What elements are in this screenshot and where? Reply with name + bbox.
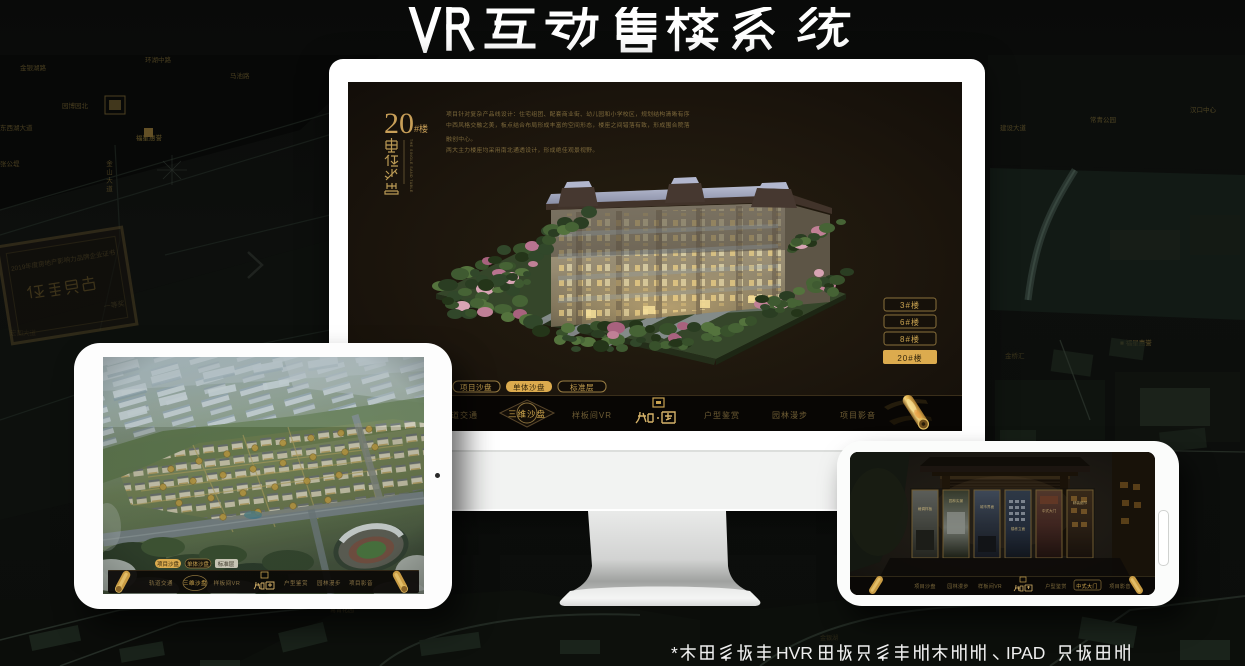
svg-text:THE SINGLE SAND TABLE: THE SINGLE SAND TABLE [409, 139, 413, 193]
svg-text:项目针对复杂产品线设计：住宅组团、配套商业街、幼儿园和小学校: 项目针对复杂产品线设计：住宅组团、配套商业街、幼儿园和小学校区，规划结构清晰有序 [446, 110, 690, 118]
svg-text:金桥汇: 金桥汇 [1005, 351, 1025, 360]
svg-text:常青公园: 常青公园 [1090, 115, 1116, 124]
svg-text:样板间VR: 样板间VR [572, 410, 612, 420]
svg-text:融创中心。: 融创中心。 [446, 135, 477, 143]
svg-text:马池路: 马池路 [230, 71, 250, 80]
svg-text:园林漫步: 园林漫步 [317, 579, 341, 587]
svg-text:格调样板: 格调样板 [918, 506, 933, 511]
svg-text:轨道交通: 轨道交通 [149, 579, 173, 587]
svg-text:户型鉴赏: 户型鉴赏 [284, 579, 308, 587]
svg-text:单体沙盘: 单体沙盘 [187, 560, 210, 568]
svg-text:样板间VR: 样板间VR [978, 583, 1002, 590]
svg-text:#楼: #楼 [414, 123, 428, 134]
svg-text:项目沙盘: 项目沙盘 [914, 583, 936, 590]
svg-text:园林漫步: 园林漫步 [772, 410, 808, 420]
svg-text:园博园北: 园博园北 [62, 101, 89, 110]
svg-text:三维沙盘: 三维沙盘 [508, 409, 546, 419]
svg-text:城市界面: 城市界面 [980, 504, 995, 509]
svg-text:3#楼: 3#楼 [900, 300, 920, 310]
svg-text:建设大道: 建设大道 [1000, 123, 1027, 132]
svg-text:两大主力楼座均采用南北通透设计，形成绝佳观景视野。: 两大主力楼座均采用南北通透设计，形成绝佳观景视野。 [446, 146, 598, 154]
svg-text:东西湖大道: 东西湖大道 [0, 123, 33, 132]
svg-text:IPAD: IPAD [1006, 643, 1046, 663]
svg-text:6#楼: 6#楼 [900, 317, 920, 327]
svg-text:园林实景: 园林实景 [949, 498, 964, 503]
svg-text:单体沙盘: 单体沙盘 [513, 382, 545, 392]
svg-text:8#楼: 8#楼 [900, 334, 920, 344]
svg-text:20: 20 [384, 107, 414, 140]
svg-text:张公堤: 张公堤 [0, 159, 20, 168]
svg-text:HVR: HVR [776, 643, 813, 663]
svg-text:样板间VR: 样板间VR [214, 579, 241, 587]
svg-text:金银湖路: 金银湖路 [20, 63, 47, 72]
svg-text:环湖中路: 环湖中路 [145, 55, 172, 64]
svg-text:中式大门: 中式大门 [1042, 508, 1057, 513]
svg-text:标准层: 标准层 [218, 560, 235, 568]
svg-text:户型鉴赏: 户型鉴赏 [704, 410, 740, 420]
svg-text:中西风格交融之美，板点结合布局形成丰富的空间形态，楼座之间错: 中西风格交融之美，板点结合布局形成丰富的空间形态，楼座之间错落有致，形成围合院落 [446, 121, 690, 129]
svg-text:汉口中心: 汉口中心 [1190, 105, 1217, 114]
svg-text:三维沙盘: 三维沙盘 [183, 579, 207, 587]
svg-text:项目影音: 项目影音 [840, 410, 876, 420]
svg-text:项目影音: 项目影音 [349, 579, 373, 587]
svg-text:项目沙盘: 项目沙盘 [157, 560, 180, 568]
svg-text:精装细节: 精装细节 [1073, 500, 1088, 505]
svg-text:标准层: 标准层 [570, 382, 594, 392]
svg-text:项目沙盘: 项目沙盘 [460, 382, 492, 392]
svg-text:*: * [671, 643, 678, 663]
svg-text:园林漫步: 园林漫步 [947, 583, 969, 590]
svg-text:20#楼: 20#楼 [897, 353, 922, 363]
svg-text:中式大门: 中式大门 [1076, 583, 1098, 590]
svg-text:楼栋立面: 楼栋立面 [1011, 526, 1026, 531]
svg-text:户型鉴赏: 户型鉴赏 [1045, 583, 1067, 590]
svg-text:金银湖: 金银湖 [820, 634, 838, 642]
svg-text:项目影音: 项目影音 [1109, 583, 1131, 590]
